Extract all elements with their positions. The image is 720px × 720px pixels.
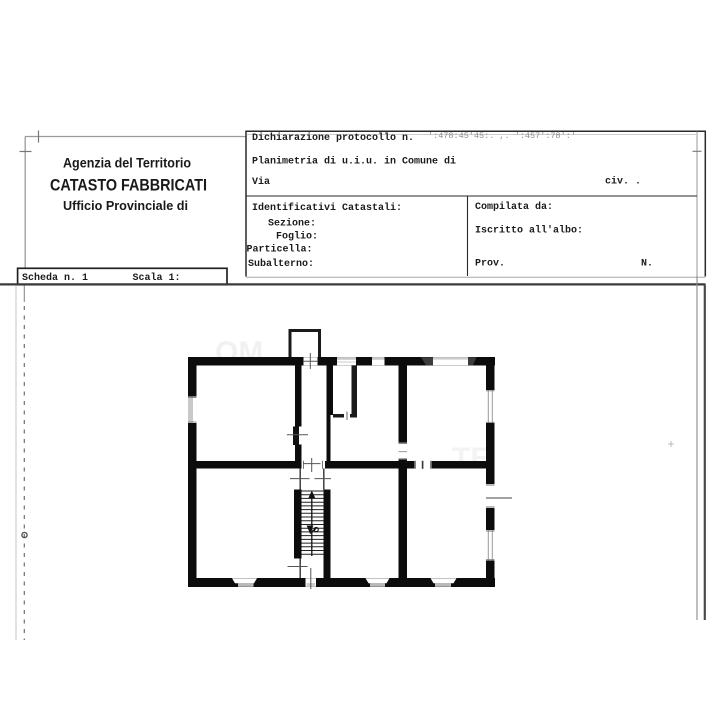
svg-text:CATASTO FABBRICATI: CATASTO FABBRICATI (50, 177, 207, 195)
svg-text:Scheda n. 1: Scheda n. 1 (22, 272, 88, 284)
svg-text:Iscritto all'albo:: Iscritto all'albo: (475, 225, 583, 237)
svg-text:':478:45'45:. ,. ':457':78':: ':478:45'45:. ,. ':457':78':' (428, 131, 576, 141)
svg-text:Via: Via (252, 176, 270, 188)
svg-text:Identificativi Catastali:: Identificativi Catastali: (252, 202, 402, 214)
svg-text:Foglio:: Foglio: (276, 230, 318, 242)
svg-text:TE: TE (452, 442, 490, 475)
svg-text:Compilata da:: Compilata da: (475, 201, 553, 213)
svg-text:Agenzia del Territorio: Agenzia del Territorio (63, 156, 191, 171)
svg-text:Ufficio Provinciale di: Ufficio Provinciale di (63, 198, 188, 213)
svg-text:Subalterno:: Subalterno: (248, 258, 314, 270)
svg-text:Particella:: Particella: (247, 244, 313, 256)
svg-text:civ. .: civ. . (605, 176, 641, 188)
svg-text:N.: N. (641, 259, 653, 270)
svg-text:Dichiarazione protocollo n.: Dichiarazione protocollo n. (252, 132, 414, 144)
svg-text:Prov.: Prov. (475, 259, 505, 270)
svg-text:Scala 1:: Scala 1: (133, 272, 181, 284)
svg-text:Planimetria di u.i.u. in Comun: Planimetria di u.i.u. in Comune di (252, 156, 456, 168)
svg-text:Sezione:: Sezione: (268, 218, 316, 230)
